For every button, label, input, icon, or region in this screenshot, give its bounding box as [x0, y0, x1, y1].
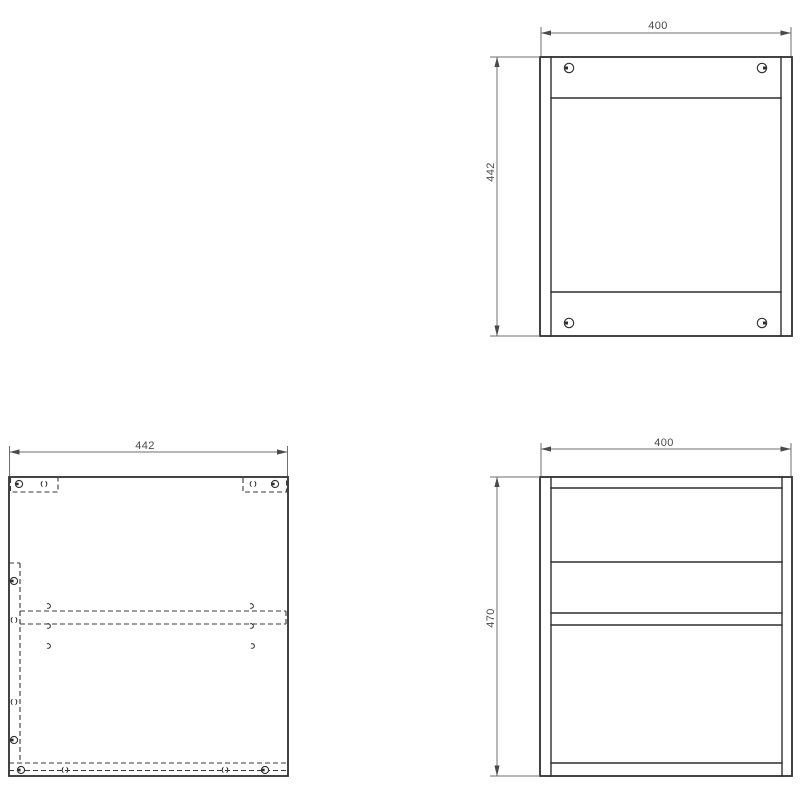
dowel-icon	[41, 481, 47, 486]
side-height-dim-label: 470	[485, 608, 497, 628]
hidden-bottom-rail	[9, 763, 288, 771]
side-panel-view: 400 470	[485, 437, 792, 776]
side-width-dimension: 400	[541, 437, 791, 476]
back-panel-view: 400 442	[485, 20, 792, 336]
cam-lock-icon	[757, 318, 766, 327]
cam-lock-icon	[10, 577, 17, 584]
side-outer-frame	[540, 477, 792, 776]
drawing-canvas: 400 442	[0, 0, 800, 800]
cam-lock-icon	[271, 480, 278, 487]
dowel-icon	[11, 699, 17, 704]
technical-drawing: 400 442	[0, 0, 800, 800]
screw-icon	[250, 624, 253, 629]
dowel-icon	[11, 617, 17, 622]
screw-icon	[251, 644, 254, 649]
side-width-dim-label: 400	[654, 437, 674, 449]
cam-lock-icon	[261, 766, 268, 773]
cam-lock-icon	[15, 480, 22, 487]
back-view-outline	[540, 57, 792, 336]
back-width-dimension: 400	[541, 20, 791, 56]
back-height-dim-label: 442	[485, 162, 497, 182]
cam-lock-icon	[564, 318, 573, 327]
back-width-dim-label: 400	[648, 20, 668, 32]
cam-lock-icon	[17, 766, 24, 773]
hidden-divider-strip	[20, 611, 286, 624]
side-height-dimension: 470	[485, 477, 540, 776]
hidden-side-rail	[9, 563, 20, 763]
cam-lock-icon	[564, 63, 573, 72]
cam-lock-icon	[10, 736, 17, 743]
side-view-outline	[540, 477, 792, 776]
hidden-lines	[9, 478, 288, 771]
bottom-width-dimension: 442	[10, 440, 288, 476]
screw-icon	[250, 604, 253, 609]
bottom-width-dim-label: 442	[135, 440, 155, 452]
back-outer-frame	[540, 57, 792, 336]
dowel-icon	[250, 481, 256, 486]
bottom-panel-view: 442	[9, 440, 288, 776]
screw-icon	[47, 644, 50, 649]
screw-icon	[47, 604, 50, 609]
cam-lock-icon	[757, 63, 766, 72]
fastener-symbols	[10, 480, 278, 773]
back-height-dimension: 442	[485, 57, 540, 336]
hidden-corner-block-right	[243, 478, 287, 492]
